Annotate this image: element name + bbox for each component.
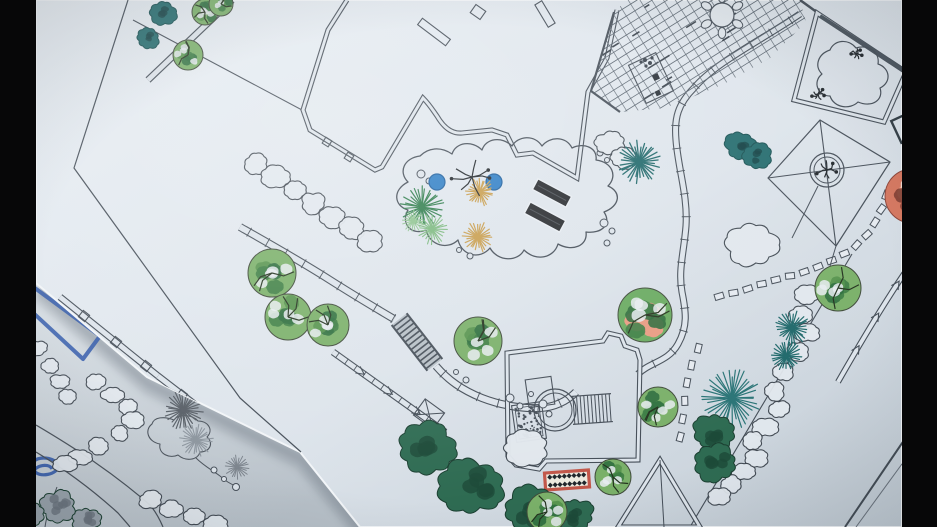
- water-bowl: [429, 174, 445, 190]
- tree-green: [454, 317, 502, 365]
- tree-green: [595, 459, 631, 495]
- pencil-canopy: [72, 508, 102, 527]
- letterbox-right: [902, 0, 937, 527]
- video-frame: [0, 0, 937, 527]
- site-plan-photo: [0, 0, 937, 527]
- entry-mat: [544, 470, 589, 490]
- tree-green-salmon: [618, 288, 672, 342]
- tree-green: [307, 304, 349, 346]
- tree-green: [527, 492, 567, 527]
- tree-green: [248, 249, 296, 297]
- tree-green: [265, 294, 311, 340]
- canopy-dark: [695, 443, 736, 483]
- tree-green: [815, 265, 861, 311]
- shrub-cloud: [503, 429, 547, 467]
- tree-green: [173, 40, 203, 70]
- letterbox-left: [0, 0, 36, 527]
- tree-green: [638, 387, 678, 427]
